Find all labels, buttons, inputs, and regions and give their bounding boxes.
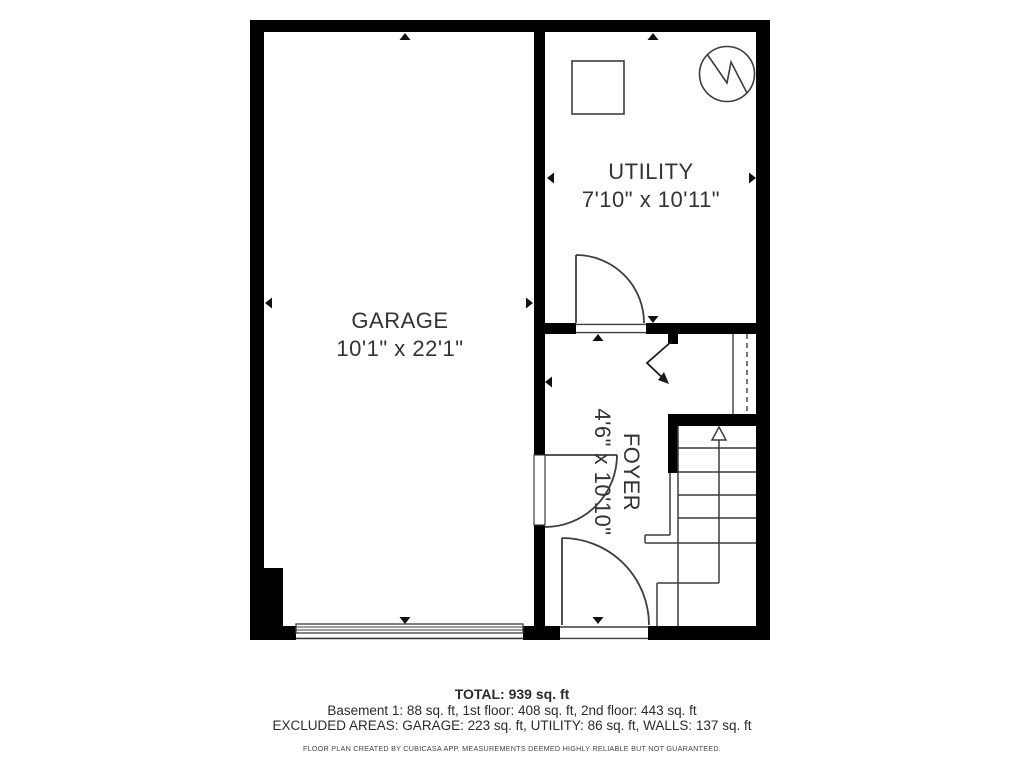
floor-plan-page: GARAGE 10'1" x 22'1" UTILITY 7'10" x 10'… bbox=[0, 0, 1024, 768]
closet-door bbox=[647, 341, 672, 381]
utility-door bbox=[576, 255, 644, 323]
stairs-direction-arrow-icon bbox=[712, 427, 726, 583]
wall-closet-bottom bbox=[668, 414, 756, 426]
utility-dimensions: 7'10" x 10'11" bbox=[545, 186, 757, 214]
total-area-text: TOTAL: 939 sq. ft bbox=[0, 687, 1024, 702]
floor-plan-canvas bbox=[0, 0, 1024, 768]
garage-name: GARAGE bbox=[265, 307, 535, 335]
wall-garage-divider-upper bbox=[534, 20, 545, 455]
utility-marker-bottom bbox=[648, 316, 659, 323]
wall-right bbox=[756, 20, 770, 640]
garage-marker-bottom bbox=[400, 617, 411, 624]
wall-left-step bbox=[250, 568, 283, 640]
wall-stair-stub bbox=[668, 426, 678, 473]
garage-door bbox=[296, 624, 523, 638]
utility-room-label: UTILITY 7'10" x 10'11" bbox=[545, 158, 757, 214]
wall-top bbox=[250, 20, 770, 32]
foyer-marker-left bbox=[545, 377, 552, 388]
foyer-marker-top bbox=[593, 334, 604, 341]
garage-dimensions: 10'1" x 22'1" bbox=[265, 335, 535, 363]
wall-left bbox=[250, 20, 264, 640]
appliance-icon bbox=[572, 61, 624, 114]
garage-room-label: GARAGE 10'1" x 22'1" bbox=[265, 307, 535, 363]
disclaimer-text: FLOOR PLAN CREATED BY CUBICASA APP. MEAS… bbox=[0, 744, 1024, 753]
foyer-marker-bottom bbox=[593, 617, 604, 624]
excluded-areas-text: EXCLUDED AREAS: GARAGE: 223 sq. ft, UTIL… bbox=[0, 719, 1024, 733]
wall-garage-divider-lower bbox=[534, 525, 545, 640]
area-summary: TOTAL: 939 sq. ft Basement 1: 88 sq. ft,… bbox=[0, 687, 1024, 753]
closet bbox=[647, 334, 747, 414]
foyer-room-label: FOYER 4'6" x 10'10" bbox=[588, 387, 646, 557]
stairs bbox=[645, 426, 756, 626]
foyer-dimensions: 4'6" x 10'10" bbox=[588, 387, 617, 557]
foyer-name: FOYER bbox=[617, 387, 646, 557]
wall-utility-foyer-right bbox=[646, 323, 756, 334]
utility-name: UTILITY bbox=[545, 158, 757, 186]
garage-entry-door-sill bbox=[534, 455, 545, 525]
wall-utility-foyer-left bbox=[545, 323, 576, 334]
water-heater-icon bbox=[700, 47, 755, 102]
floor-areas-text: Basement 1: 88 sq. ft, 1st floor: 408 sq… bbox=[0, 704, 1024, 718]
utility-marker-top bbox=[648, 33, 659, 40]
wall-bottom-right bbox=[648, 626, 770, 640]
garage-marker-top bbox=[400, 33, 411, 40]
